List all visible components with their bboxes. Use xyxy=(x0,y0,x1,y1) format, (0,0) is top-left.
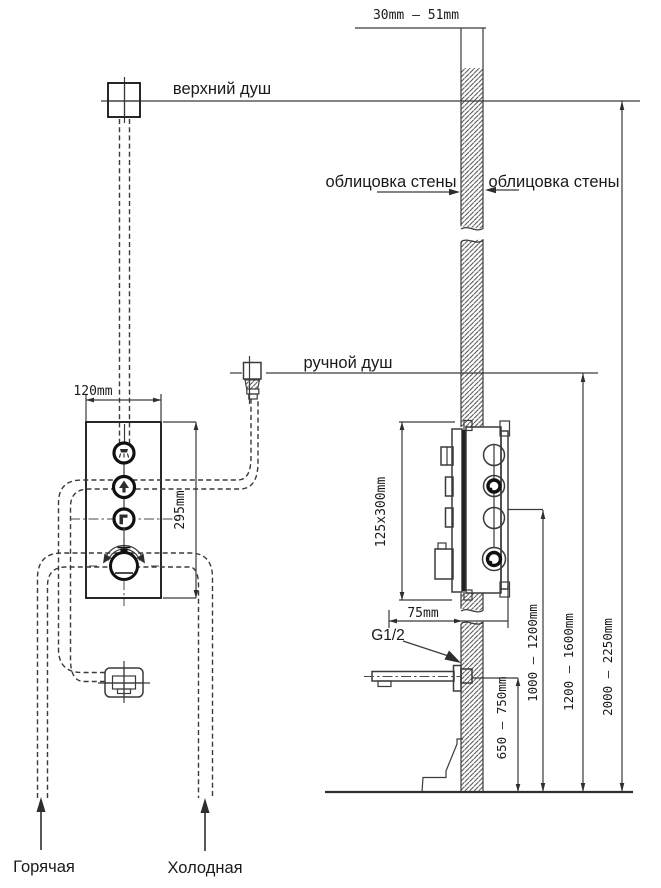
wall-spout xyxy=(364,641,472,691)
button-overhead-shower xyxy=(114,443,134,463)
panel-height-label: 295mm xyxy=(173,490,188,529)
g12-arrow xyxy=(445,651,462,664)
panel-controls xyxy=(103,443,145,606)
cladding-right-label: облицовка стены xyxy=(488,173,619,191)
hot-supply-label: Горячая xyxy=(13,858,75,876)
pipes xyxy=(38,119,259,798)
supply-arrows xyxy=(37,797,210,851)
diagram-canvas: 30mm — 51mm верхний душ облицовка стены … xyxy=(0,0,661,888)
port-4 xyxy=(435,549,453,579)
box-dimensions-label: 125x300mm xyxy=(374,477,389,548)
hand-shower-cone xyxy=(245,380,260,389)
outlet-elbow-box xyxy=(98,661,150,703)
thread-size-label: G1/2 xyxy=(371,627,405,644)
pedestal-outline xyxy=(422,739,463,792)
hand-shower-label: ручной душ xyxy=(303,354,392,372)
dimensions xyxy=(86,101,624,792)
upper-shower-label: верхний душ xyxy=(173,80,271,98)
hand-shower-height-label: 1200 — 1600mm xyxy=(561,613,576,711)
text-labels: 30mm — 51mm верхний душ облицовка стены … xyxy=(13,8,619,877)
upper-shower-height-label: 2000 — 2250mm xyxy=(600,618,615,716)
mixer-height-label: 1000 — 1200mm xyxy=(525,604,540,702)
panel-width-label: 120mm xyxy=(73,384,112,399)
hand-shower-holder xyxy=(244,363,262,380)
hand-shower xyxy=(230,356,598,404)
button-spout xyxy=(114,509,134,529)
cladding-left-label: облицовка стены xyxy=(325,173,456,191)
installation-diagram: 30mm — 51mm верхний душ облицовка стены … xyxy=(0,0,661,888)
cold-supply-label: Холодная xyxy=(167,859,242,877)
hot-arrow xyxy=(37,797,46,812)
cold-arrow xyxy=(201,798,210,813)
hand-shower-hose xyxy=(59,399,252,673)
wall-to-box-label: 75mm xyxy=(407,606,438,621)
wall-break-lower xyxy=(459,609,485,625)
wall-thickness-label: 30mm — 51mm xyxy=(373,8,459,23)
spout-height-label: 650 — 750mm xyxy=(494,677,509,760)
